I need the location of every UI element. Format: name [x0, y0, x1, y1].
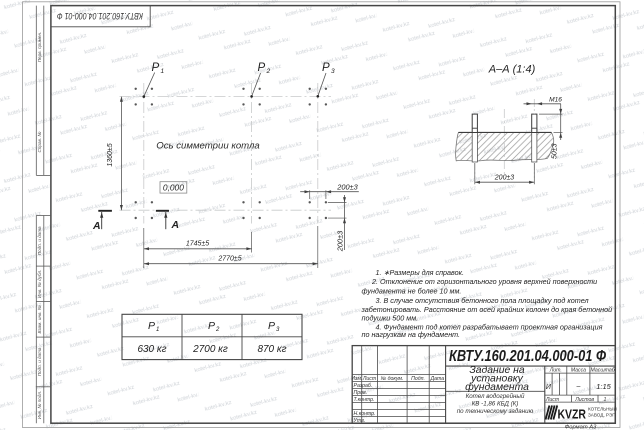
svg-text:1:15: 1:15 [596, 382, 611, 391]
svg-text:А–А (1:4): А–А (1:4) [488, 64, 536, 76]
svg-text:1745±5: 1745±5 [186, 241, 209, 248]
svg-text:фундамента не более 10 мм.: фундамента не более 10 мм. [362, 287, 462, 296]
svg-text:Формат А3: Формат А3 [565, 424, 597, 430]
svg-text:Дата: Дата [429, 376, 444, 382]
svg-text:3. В случае отсутствия бет: 3. В случае отсутствия бетонного пола пл… [376, 296, 589, 305]
svg-text:A: A [92, 220, 101, 232]
svg-text:Подп. и дата: Подп. и дата [37, 226, 42, 255]
svg-text:0,000: 0,000 [163, 182, 184, 192]
svg-text:50±3: 50±3 [551, 143, 558, 159]
svg-text:Подп. и дата: Подп. и дата [37, 347, 42, 376]
svg-text:1: 1 [161, 68, 165, 75]
svg-text:Утв.: Утв. [354, 418, 366, 424]
svg-text:P: P [152, 62, 160, 74]
svg-text:Перв. примен.: Перв. примен. [37, 32, 42, 63]
svg-text:–: – [575, 383, 580, 390]
svg-text:2700 кг: 2700 кг [192, 344, 228, 355]
svg-text:1360±5: 1360±5 [107, 143, 114, 166]
svg-text:по нагрузкам на фундамент.: по нагрузкам на фундамент. [362, 330, 461, 339]
svg-text:Разраб.: Разраб. [354, 383, 373, 389]
svg-text:3: 3 [331, 68, 335, 75]
svg-text:Листов: Листов [574, 397, 594, 403]
svg-text:2770±5: 2770±5 [217, 256, 241, 263]
svg-text:870 кг: 870 кг [257, 344, 286, 355]
svg-text:P: P [258, 62, 266, 74]
svg-text:Пров.: Пров. [354, 390, 368, 396]
svg-text:1: 1 [604, 397, 607, 403]
svg-text:Масштаб: Масштаб [590, 367, 615, 373]
svg-text:КОТЕЛЬНЫЙ: КОТЕЛЬНЫЙ [588, 405, 617, 412]
svg-text:200±3: 200±3 [336, 230, 345, 252]
svg-text:Масса: Масса [571, 367, 586, 373]
svg-text:Лит.: Лит. [549, 367, 562, 373]
svg-text:2. Отклонение от горизонтал: 2. Отклонение от горизонтального уровня … [371, 277, 597, 286]
svg-text:КВТУ.160.201.04.000-01 Ф: КВТУ.160.201.04.000-01 Ф [449, 348, 606, 365]
svg-text:подушки 500 мм.: подушки 500 мм. [362, 313, 419, 322]
svg-text:200±3: 200±3 [336, 183, 358, 192]
svg-text:Справ. №: Справ. № [37, 132, 42, 153]
svg-text:1: 1 [156, 327, 159, 333]
svg-text:КВТУ.160.201.04.000-01 Ф: КВТУ.160.201.04.000-01 Ф [57, 11, 143, 22]
svg-text:Подп.: Подп. [411, 376, 425, 382]
svg-text:Т.контр.: Т.контр. [354, 397, 375, 403]
svg-text:КВ -1,86 КБД (К): КВ -1,86 КБД (К) [472, 400, 519, 407]
svg-text:200±3: 200±3 [494, 174, 515, 181]
svg-text:№ докум.: № докум. [381, 376, 404, 382]
svg-text:Инв. № дубл.: Инв. № дубл. [37, 270, 42, 298]
svg-text:Н.контр.: Н.контр. [354, 411, 376, 417]
svg-text:2: 2 [215, 327, 220, 333]
svg-text:KVZR: KVZR [558, 407, 587, 422]
svg-text:P: P [208, 320, 215, 332]
svg-text:P: P [322, 62, 330, 74]
svg-text:по техническому заданию: по техническому заданию [457, 408, 534, 415]
svg-text:A: A [171, 219, 180, 231]
svg-text:М16: М16 [549, 97, 562, 104]
svg-text:ЗАВОД, РЭП: ЗАВОД, РЭП [588, 413, 616, 418]
svg-text:1. ∗Размеры для справок.: 1. ∗Размеры для справок. [376, 268, 465, 277]
svg-text:Ось симметрии котла: Ось симметрии котла [156, 140, 259, 151]
svg-text:P: P [148, 320, 155, 332]
svg-text:фундамента: фундамента [465, 381, 529, 393]
svg-text:Котел водогрейный: Котел водогрейный [466, 393, 525, 400]
svg-text:Лист: Лист [545, 397, 560, 403]
svg-text:Лист: Лист [362, 376, 377, 382]
svg-text:630 кг: 630 кг [137, 344, 166, 355]
svg-text:2: 2 [266, 68, 271, 75]
svg-text:P: P [268, 320, 275, 332]
svg-text:Взам. инв. №: Взам. инв. № [37, 305, 42, 333]
svg-text:Изм.: Изм. [351, 376, 362, 382]
svg-text:Инв. № подл.: Инв. № подл. [37, 391, 42, 420]
